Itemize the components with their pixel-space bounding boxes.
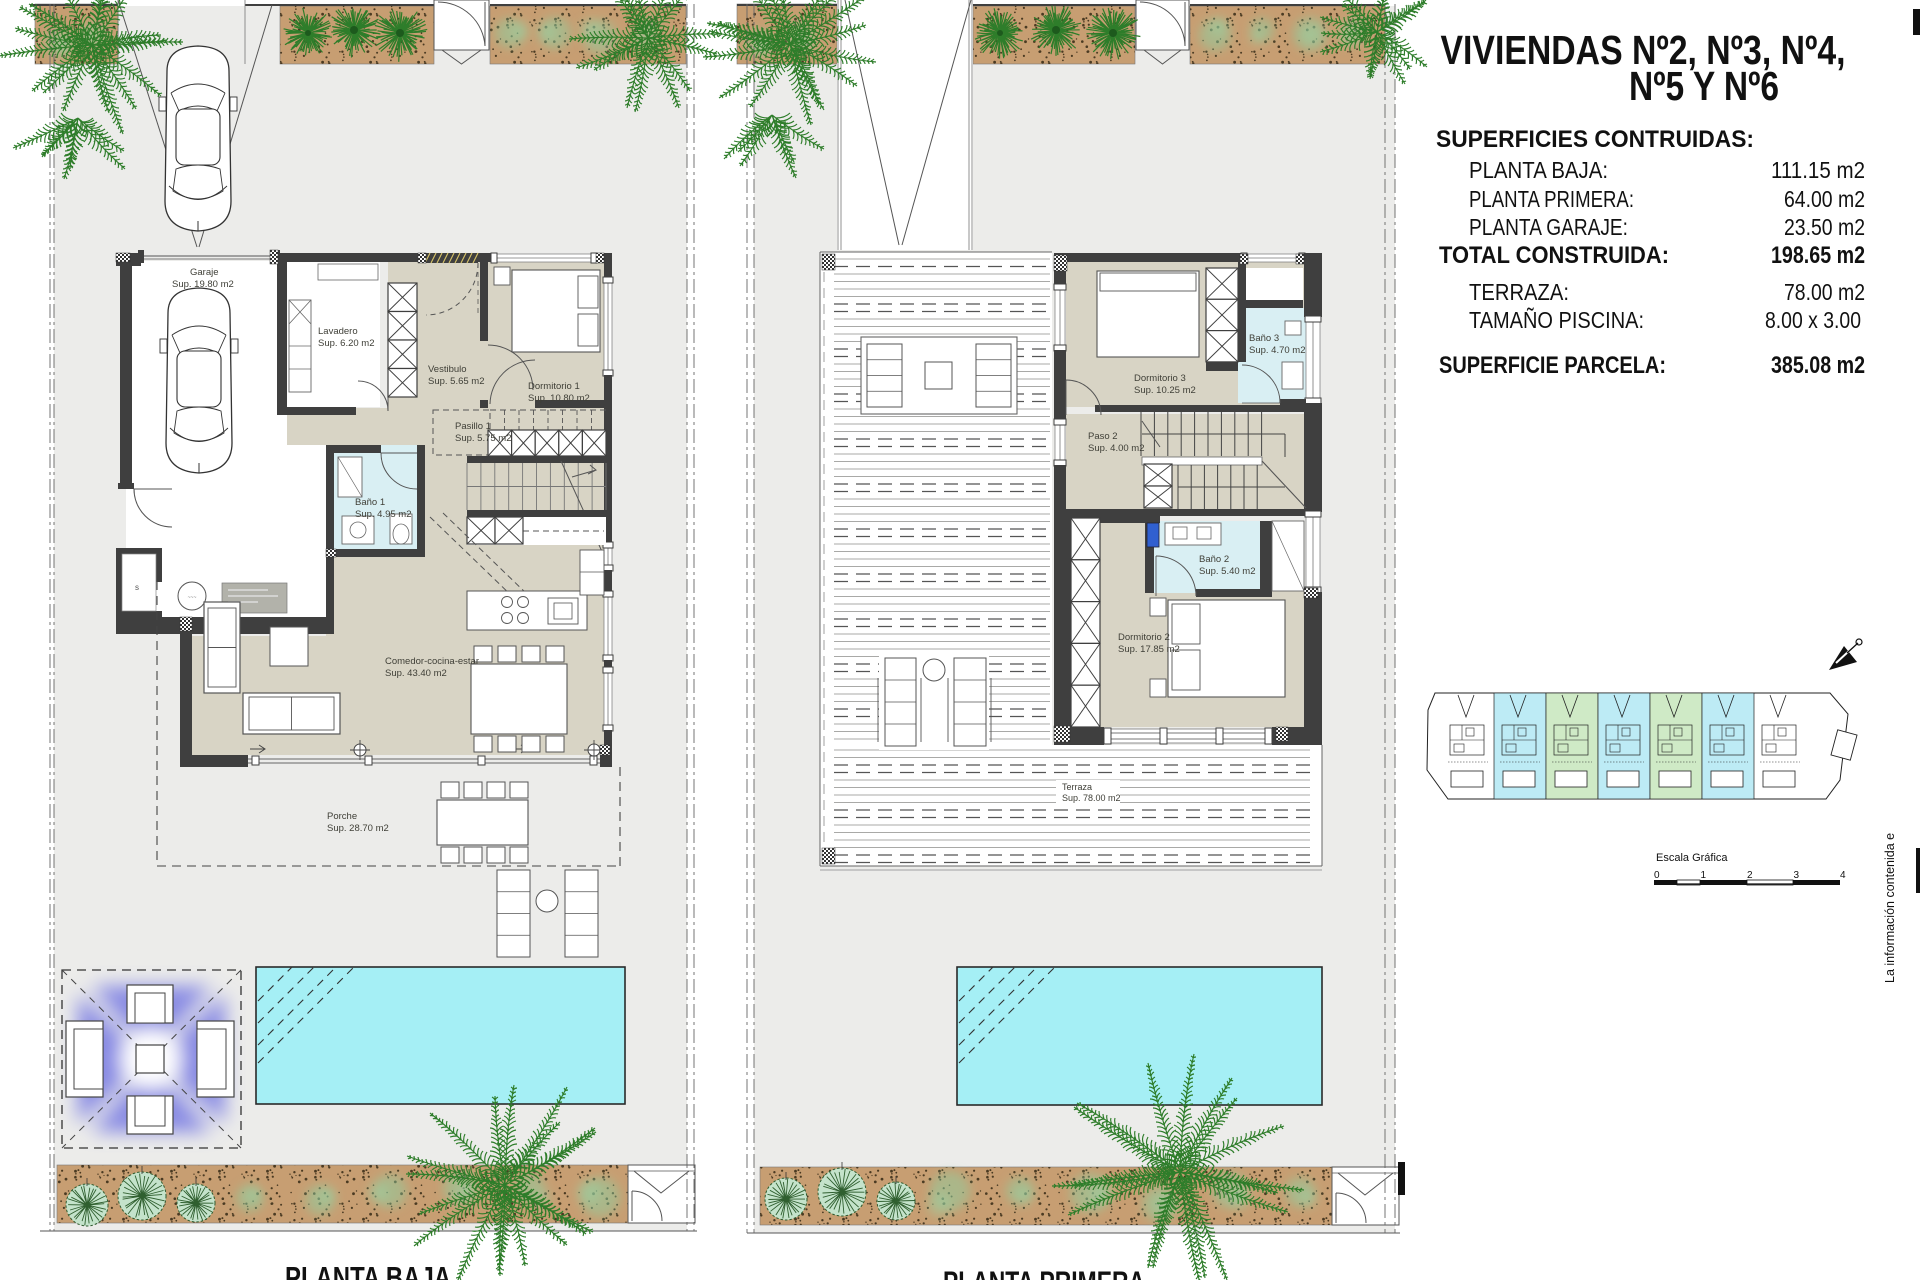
svg-text:Sup. 5.75 m2: Sup. 5.75 m2: [455, 433, 512, 444]
svg-text:2: 2: [1747, 870, 1753, 881]
svg-text:Sup. 10.25 m2: Sup. 10.25 m2: [1134, 385, 1196, 396]
svg-text:Sup. 4.70 m2: Sup. 4.70 m2: [1249, 345, 1306, 356]
svg-text:Sup. 28.70 m2: Sup. 28.70 m2: [327, 823, 389, 834]
svg-text:Sup. 4.00 m2: Sup. 4.00 m2: [1088, 443, 1145, 454]
svg-text:Porche: Porche: [327, 811, 357, 822]
svg-text:198.65 m2: 198.65 m2: [1771, 242, 1865, 269]
svg-text:0: 0: [1654, 870, 1660, 881]
svg-text:Comedor-cocina-estar: Comedor-cocina-estar: [385, 656, 479, 667]
svg-text:Escala Gráfica: Escala Gráfica: [1656, 852, 1728, 864]
svg-text:Baño 1: Baño 1: [355, 497, 385, 508]
svg-text:8.00 x 3.00: 8.00 x 3.00: [1765, 307, 1861, 333]
svg-text:PLANTA BAJA:: PLANTA BAJA:: [1469, 157, 1608, 183]
svg-text:64.00 m2: 64.00 m2: [1784, 186, 1865, 212]
svg-text:1: 1: [1701, 870, 1707, 881]
svg-text:23.50 m2: 23.50 m2: [1784, 214, 1865, 240]
svg-text:s: s: [135, 583, 139, 592]
svg-text:Sup. 17.85 m2: Sup. 17.85 m2: [1118, 644, 1180, 655]
svg-text:PLANTA PRIMERA:: PLANTA PRIMERA:: [1469, 186, 1634, 212]
svg-text:Sup. 10.80 m2: Sup. 10.80 m2: [528, 393, 590, 404]
svg-text:Pasillo 1: Pasillo 1: [455, 421, 491, 432]
svg-text:Dormitorio 2: Dormitorio 2: [1118, 632, 1170, 643]
svg-text:PLANTA GARAJE:: PLANTA GARAJE:: [1469, 214, 1628, 240]
svg-text:Baño 3: Baño 3: [1249, 333, 1279, 344]
svg-text:Nº5 Y Nº6: Nº5 Y Nº6: [1629, 63, 1779, 109]
svg-text:Lavadero: Lavadero: [318, 326, 358, 337]
svg-text:~~~: ~~~: [188, 595, 197, 601]
svg-text:La información contenida e: La información contenida e: [1883, 833, 1897, 983]
svg-text:Sup. 5.65 m2: Sup. 5.65 m2: [428, 376, 485, 387]
svg-text:Sup. 4.95 m2: Sup. 4.95 m2: [355, 509, 412, 520]
svg-text:Sup. 78.00 m2: Sup. 78.00 m2: [1062, 793, 1121, 803]
svg-text:Sup. 5.40 m2: Sup. 5.40 m2: [1199, 566, 1256, 577]
svg-text:TOTAL CONSTRUIDA:: TOTAL CONSTRUIDA:: [1439, 242, 1669, 269]
svg-text:3: 3: [1794, 870, 1800, 881]
svg-text:Sup. 43.40 m2: Sup. 43.40 m2: [385, 668, 447, 679]
svg-text:Baño 2: Baño 2: [1199, 554, 1229, 565]
svg-text:4: 4: [1840, 870, 1846, 881]
svg-text:Sup. 6.20 m2: Sup. 6.20 m2: [318, 338, 375, 349]
svg-text:SUPERFICIE PARCELA:: SUPERFICIE PARCELA:: [1439, 352, 1666, 379]
svg-text:PLANTA BAJA: PLANTA BAJA: [285, 1260, 451, 1280]
svg-text:TAMAÑO PISCINA:: TAMAÑO PISCINA:: [1469, 307, 1644, 333]
svg-text:78.00 m2: 78.00 m2: [1784, 279, 1865, 305]
svg-text:PLANTA PRIMERA: PLANTA PRIMERA: [943, 1266, 1145, 1280]
svg-text:SUPERFICIES CONTRUIDAS:: SUPERFICIES CONTRUIDAS:: [1436, 126, 1754, 153]
svg-text:385.08 m2: 385.08 m2: [1771, 352, 1865, 379]
svg-text:111.15 m2: 111.15 m2: [1771, 157, 1865, 183]
svg-text:Dormitorio 1: Dormitorio 1: [528, 381, 580, 392]
svg-text:Dormitorio 3: Dormitorio 3: [1134, 373, 1186, 384]
svg-text:Paso 2: Paso 2: [1088, 431, 1118, 442]
svg-text:Vestibulo: Vestibulo: [428, 364, 467, 375]
svg-text:Garaje: Garaje: [190, 267, 219, 278]
svg-text:Terraza: Terraza: [1062, 782, 1092, 792]
svg-text:TERRAZA:: TERRAZA:: [1469, 279, 1569, 305]
